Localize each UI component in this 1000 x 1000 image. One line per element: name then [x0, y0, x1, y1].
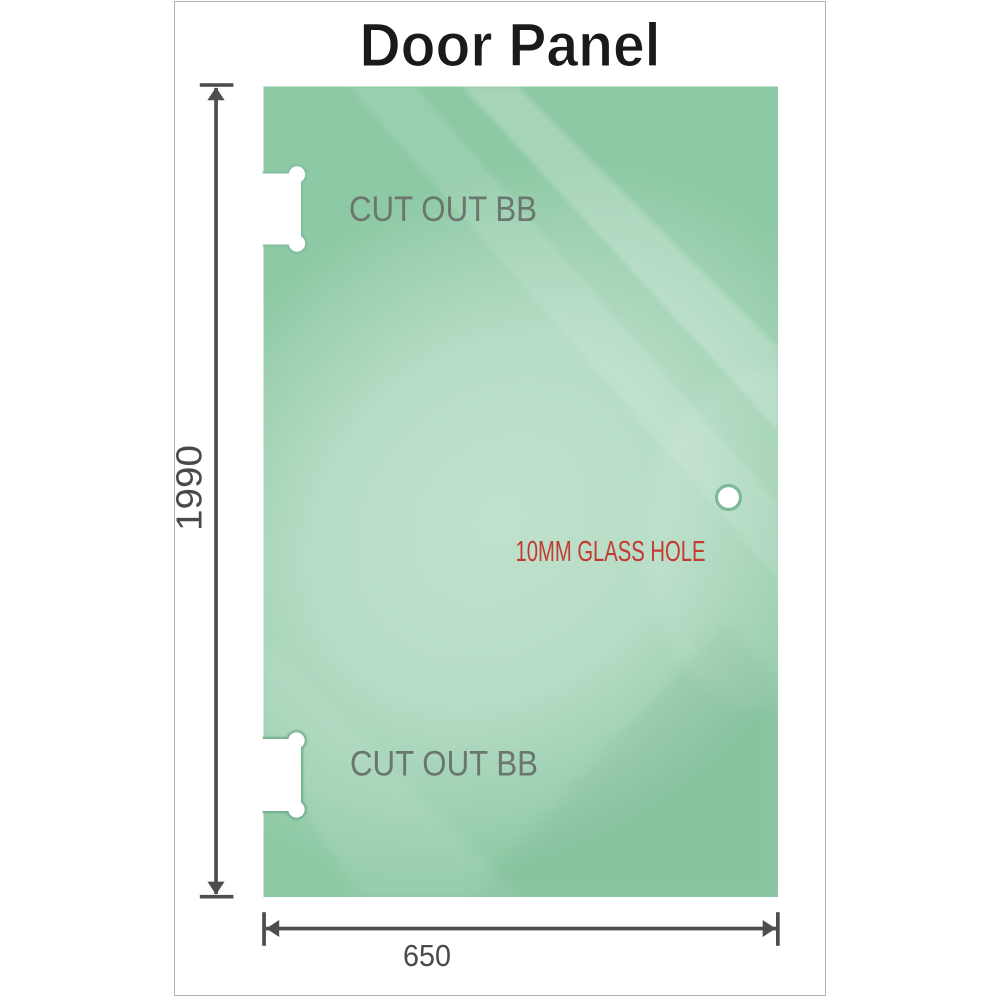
svg-text:Door Panel: Door Panel — [360, 11, 661, 79]
svg-text:CUT OUT BB: CUT OUT BB — [349, 190, 537, 229]
svg-text:650: 650 — [403, 938, 451, 973]
svg-text:1990: 1990 — [169, 445, 210, 531]
svg-text:CUT OUT BB: CUT OUT BB — [350, 745, 538, 784]
svg-text:10MM GLASS HOLE: 10MM GLASS HOLE — [516, 536, 706, 568]
